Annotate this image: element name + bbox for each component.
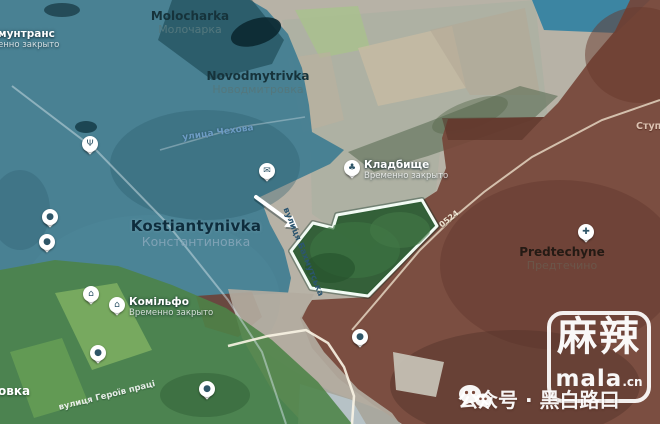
place-name: Predtechyne [519,246,604,260]
bakery-pin[interactable]: ● [42,209,58,225]
place-name: Novodmytrivka [207,70,310,84]
poi-text: КладбищеВременно закрыто [364,160,448,181]
place-alt-name: Молочарка [151,24,229,37]
poi-status: енно закрыто [0,41,59,50]
place-name: овка [0,385,30,399]
poi-label: Комільфо [129,297,213,308]
shop-pin[interactable]: ● [352,329,368,345]
shop-icon: ● [90,345,106,361]
shop-pin[interactable]: ⌂ [83,286,99,302]
poi-label: мунтранс [0,29,59,40]
restaurant-icon: Ψ [82,136,98,152]
place-alt-name: Новодмитровка [207,84,310,97]
place-name: Kostiantynivka [131,218,262,235]
shop-pin[interactable]: ● [90,345,106,361]
place-name: Molocharka [151,10,229,24]
poi-label: Кладбище [364,160,448,171]
shop-pin[interactable]: ● [39,234,55,250]
bottom-caption: 公众号 · 黑白路口 [458,384,620,413]
place-alt-name: Константиновка [131,235,262,249]
fuel-pin[interactable]: ● [199,381,215,397]
poi-text: мунтрансенно закрыто [0,29,59,50]
wechat-icon [458,384,492,410]
church-pin[interactable]: ✚ [578,224,594,240]
place-label-predtechyne: PredtechyneПредтечино [519,246,604,272]
place-label-ovka: овка [0,385,30,399]
shop-pin[interactable]: ⌂ [109,297,125,313]
post-pin[interactable]: ✉ [259,163,275,179]
shop-icon: ● [39,234,55,250]
poi-status: Временно закрыто [129,309,213,318]
bakery-icon: ● [42,209,58,225]
church-icon: ✚ [578,224,594,240]
shop-icon: ⌂ [83,286,99,302]
place-label-kostiantynivka: KostiantynivkaКонстантиновка [131,218,262,250]
place-label-stup: Ступ [636,122,660,133]
watermark-brand: 麻辣 [547,317,651,357]
cemetery-pin[interactable]: ♣ [344,160,360,176]
poi-status: Временно закрыто [364,172,448,181]
place-name: Ступ [636,122,660,133]
street-label-road-0524: 0524 [437,209,460,230]
place-label-novodmytrivka: NovodmytrivkaНоводмитровка [207,70,310,96]
restaurant-pin[interactable]: Ψ [82,136,98,152]
map-canvas[interactable]: MolocharkaМолочаркаNovodmytrivkaНоводмит… [0,0,660,424]
cemetery-icon: ♣ [344,160,360,176]
post-icon: ✉ [259,163,275,179]
shop-icon: ● [352,329,368,345]
place-label-molocharka: MolocharkaМолочарка [151,10,229,36]
place-alt-name: Предтечино [519,260,604,273]
fuel-icon: ● [199,381,215,397]
street-label-heroiv: вулиця Героїв праці [58,379,157,413]
poi-text: КомільфоВременно закрыто [129,297,213,318]
street-label-bakhmutska: вулиця Бахмутська [281,206,326,298]
street-label-chekhova: улица Чехова [182,123,254,143]
shop-icon: ⌂ [109,297,125,313]
